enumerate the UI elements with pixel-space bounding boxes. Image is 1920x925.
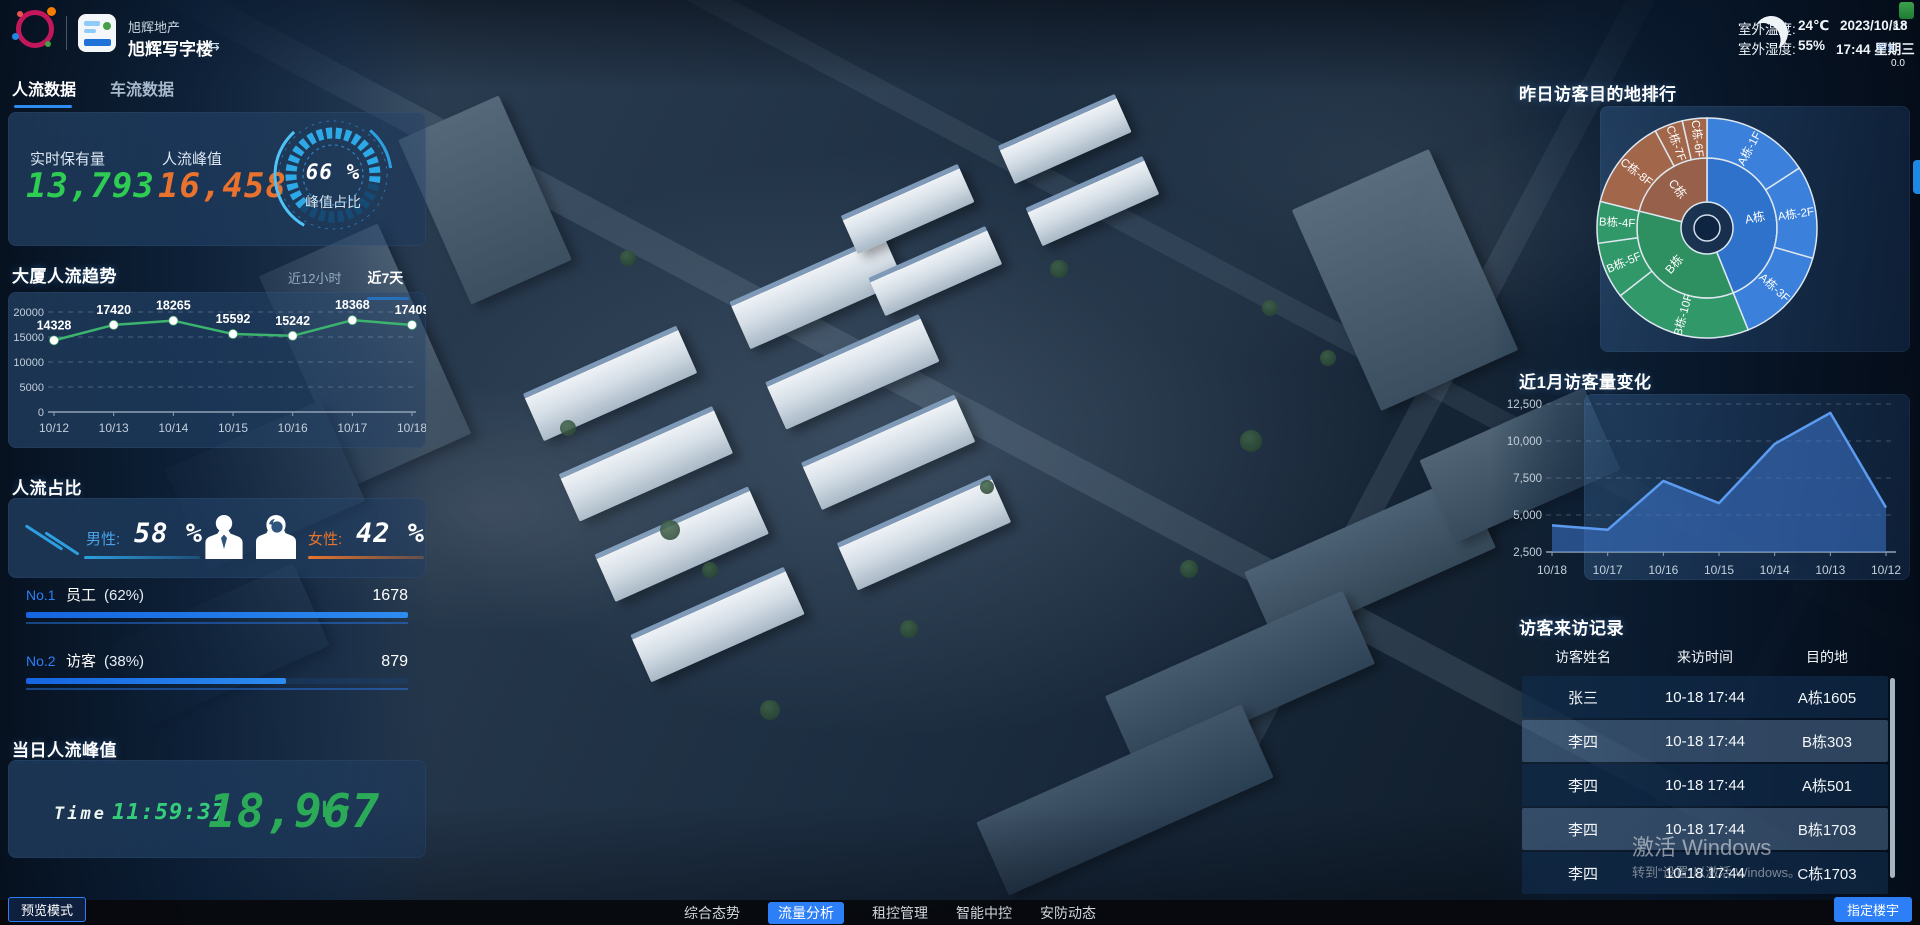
- table-cell: 李四: [1522, 775, 1644, 796]
- net-speed-down: 0.0: [1891, 58, 1905, 69]
- rank-badge: No.2: [26, 653, 66, 669]
- assign-building-button[interactable]: 指定楼宇: [1834, 897, 1912, 922]
- male-underline: [84, 556, 200, 559]
- monthly-visits-area-chart: 2,5005,0007,50010,00012,50010/1810/1710/…: [1498, 388, 1908, 592]
- main-nav: 综合态势流量分析租控管理智能中控安防动态: [684, 902, 1096, 923]
- building-app-icon: [78, 14, 116, 52]
- building-name: 旭辉写字楼: [128, 35, 213, 60]
- scene-building: [1292, 149, 1519, 411]
- svg-text:7,500: 7,500: [1513, 473, 1542, 485]
- nav-item-link[interactable]: 租控管理: [872, 903, 928, 923]
- rank-bar-underline: [26, 622, 408, 624]
- outdoor-temp-label: 室外温度:: [1738, 18, 1796, 38]
- trend-title: 大厦人流趋势: [12, 262, 117, 287]
- rank-bars: No.1员工(62%)1678No.2访客(38%)879: [26, 584, 408, 716]
- scene-building: [1025, 156, 1159, 246]
- svg-text:18265: 18265: [156, 299, 191, 313]
- rank-bar-row: No.2访客(38%)879: [26, 650, 408, 690]
- tab-vehicle-flow[interactable]: 车流数据: [110, 76, 174, 108]
- male-label: 男性:: [86, 528, 120, 549]
- scene-building: [841, 164, 975, 254]
- rank-label: 员工: [66, 584, 96, 605]
- windows-watermark-line2: 转到“设置”以激活 Windows。: [1632, 862, 1801, 881]
- table-cell: A栋1605: [1766, 687, 1888, 708]
- scene-tree: [560, 420, 576, 436]
- outdoor-hum-value: 55%: [1798, 38, 1825, 53]
- rank-percent: (38%): [104, 653, 144, 670]
- scene-building: [523, 325, 698, 441]
- table-cell: B栋303: [1766, 731, 1888, 752]
- trend-range-tabs: 近12小时 近7天: [288, 268, 403, 294]
- svg-text:2,500: 2,500: [1513, 547, 1542, 559]
- svg-text:0: 0: [38, 407, 44, 419]
- scene-tree: [1050, 260, 1068, 278]
- svg-text:10/12: 10/12: [39, 421, 69, 435]
- scene-building: [801, 394, 976, 510]
- net-speed-unit: K/s: [1878, 42, 1892, 53]
- svg-text:17409: 17409: [395, 303, 426, 317]
- rank-bar-underline: [26, 688, 408, 690]
- svg-text:10/13: 10/13: [99, 421, 129, 435]
- scene-tree: [702, 562, 718, 578]
- svg-text:18368: 18368: [335, 298, 370, 312]
- rank-bar-header: No.1员工(62%)1678: [26, 584, 408, 606]
- scene-tree: [660, 520, 680, 540]
- today-peak-title: 当日人流峰值: [12, 736, 117, 761]
- svg-text:15242: 15242: [275, 314, 310, 328]
- current-time: 17:44 星期三: [1836, 38, 1915, 58]
- time-label: Time: [54, 804, 107, 824]
- header-divider: [66, 16, 67, 50]
- left-panel: 旭辉地产 旭辉写字楼 ⇆ 人流数据 车流数据 实时保有量 13,793 人流峰值…: [0, 0, 432, 925]
- table-cell: 李四: [1522, 731, 1644, 752]
- svg-text:10/12: 10/12: [1871, 563, 1901, 577]
- male-value: 58 %: [134, 518, 203, 549]
- scene-building: [559, 406, 734, 522]
- scene-tree: [760, 700, 780, 720]
- male-icon: [204, 514, 244, 560]
- peak-ratio-gauge: 66 % 峰值占比: [268, 110, 398, 240]
- data-tabs: 人流数据 车流数据: [12, 76, 174, 108]
- range-tab-7d[interactable]: 近7天: [367, 268, 403, 294]
- scene-building: [1244, 475, 1496, 646]
- male-deco-line: [25, 524, 64, 550]
- logo-dot: [45, 41, 51, 47]
- svg-text:10/15: 10/15: [1704, 563, 1734, 577]
- ratio-title: 人流占比: [12, 474, 82, 499]
- rank-bar-track: [26, 612, 408, 618]
- rank-bar-fill: [26, 612, 408, 618]
- scene-tree: [1240, 430, 1262, 452]
- table-cell: A栋501: [1766, 775, 1888, 796]
- logo-dot: [47, 7, 56, 16]
- table-header-cell: 来访时间: [1644, 647, 1766, 667]
- svg-text:10000: 10000: [13, 357, 44, 369]
- table-cell: 10-18 17:44: [1644, 689, 1766, 706]
- svg-text:17420: 17420: [96, 303, 131, 317]
- destination-sunburst-chart: A栋B栋C栋A栋-1FA栋-2FA栋-3FB栋-10FB栋-5FB栋-4FC栋-…: [1593, 114, 1821, 342]
- logo-dot: [17, 11, 23, 17]
- svg-text:10/17: 10/17: [337, 421, 367, 435]
- table-cell: 李四: [1522, 819, 1644, 840]
- table-cell: 10-18 17:44: [1644, 777, 1766, 794]
- tray-app-icon: [1899, 2, 1914, 19]
- rank-bar-row: No.1员工(62%)1678: [26, 584, 408, 624]
- female-label: 女性:: [308, 528, 342, 549]
- gender-ratio-card: 男性: 58 % 女性: 42 %: [8, 498, 426, 578]
- scene-building: [729, 234, 904, 350]
- svg-text:10,000: 10,000: [1507, 436, 1542, 448]
- svg-text:10/15: 10/15: [218, 421, 248, 435]
- table-cell: 10-18 17:44: [1644, 733, 1766, 750]
- right-edge-scroll-pill[interactable]: [1913, 160, 1920, 194]
- gauge-value: 66 %: [268, 160, 398, 184]
- svg-text:10/16: 10/16: [278, 421, 308, 435]
- nav-item-link[interactable]: 安防动态: [1040, 903, 1096, 923]
- nav-item-active[interactable]: 流量分析: [768, 902, 844, 924]
- preview-mode-button[interactable]: 预览模式: [8, 897, 86, 922]
- rank-value: 879: [381, 653, 408, 671]
- outdoor-temp-value: 24℃: [1798, 18, 1829, 34]
- scene-tree: [1262, 300, 1278, 316]
- svg-text:15592: 15592: [216, 312, 251, 326]
- scene-tree: [1320, 350, 1336, 366]
- rank-badge: No.1: [26, 587, 66, 603]
- scene-building: [594, 486, 769, 602]
- table-header-cell: 访客姓名: [1522, 647, 1644, 667]
- right-panel: 昨日访客目的地排行 A栋B栋C栋A栋-1FA栋-2FA栋-3FB栋-10FB栋-…: [1490, 0, 1920, 925]
- female-underline: [308, 556, 424, 559]
- nav-item-link[interactable]: 综合态势: [684, 903, 740, 923]
- rank-percent: (62%): [104, 587, 144, 604]
- trend-chart-card: 0500010000150002000010/1210/1310/1410/15…: [8, 292, 426, 448]
- windows-watermark-line1: 激活 Windows: [1632, 830, 1771, 862]
- icon-bar: [84, 29, 96, 33]
- svg-text:10/18: 10/18: [1537, 563, 1567, 577]
- records-title: 访客来访记录: [1519, 614, 1624, 639]
- svg-text:20000: 20000: [13, 307, 44, 319]
- icon-dot: [103, 22, 111, 30]
- icon-bar: [84, 39, 111, 46]
- gauge-caption: 峰值占比: [268, 192, 398, 212]
- people-flow-line-chart: 0500010000150002000010/1210/1310/1410/15…: [8, 292, 426, 448]
- company-name: 旭辉地产: [128, 17, 180, 36]
- table-row[interactable]: 张三10-18 17:44A栋1605: [1522, 676, 1888, 718]
- tab-people-flow[interactable]: 人流数据: [12, 76, 76, 108]
- svg-text:10/14: 10/14: [1760, 563, 1790, 577]
- bottom-nav-bar: 综合态势流量分析租控管理智能中控安防动态: [0, 900, 1920, 925]
- scene-building-cluster: [841, 94, 1160, 317]
- table-cell: B栋1703: [1766, 819, 1888, 840]
- scene-building: [998, 94, 1132, 184]
- scene-tree: [900, 620, 918, 638]
- rank-value: 1678: [372, 587, 408, 605]
- scene-building: [630, 567, 805, 683]
- scene-tree: [980, 480, 994, 494]
- nav-item-link[interactable]: 智能中控: [956, 903, 1012, 923]
- table-cell: 李四: [1522, 863, 1644, 884]
- scene-building: [765, 314, 940, 430]
- scene-building: [976, 704, 1273, 895]
- svg-text:10/17: 10/17: [1593, 563, 1623, 577]
- outdoor-hum-label: 室外湿度:: [1738, 38, 1796, 58]
- rank-label: 访客: [66, 650, 96, 671]
- range-tab-12h[interactable]: 近12小时: [288, 268, 341, 294]
- retain-value: 13,793: [26, 166, 155, 206]
- svg-text:5000: 5000: [20, 382, 44, 394]
- svg-text:10/13: 10/13: [1815, 563, 1845, 577]
- switch-building-icon[interactable]: ⇆: [208, 37, 220, 54]
- svg-text:10/14: 10/14: [158, 421, 188, 435]
- table-header-row: 访客姓名来访时间目的地: [1522, 640, 1888, 674]
- table-row[interactable]: 李四10-18 17:44A栋501: [1522, 764, 1888, 806]
- svg-text:14328: 14328: [37, 318, 72, 332]
- svg-text:15000: 15000: [13, 332, 44, 344]
- table-cell: 张三: [1522, 687, 1644, 708]
- female-icon: [256, 514, 296, 560]
- female-value: 42 %: [356, 518, 425, 549]
- rank-bar-header: No.2访客(38%)879: [26, 650, 408, 672]
- scene-building: [868, 226, 1002, 316]
- scene-building-cluster: [523, 234, 1011, 683]
- scene-building: [1105, 591, 1375, 770]
- table-header-cell: 目的地: [1766, 647, 1888, 667]
- logo-dot: [12, 33, 19, 40]
- brand-logo-icon: [16, 10, 54, 48]
- scene-building: [837, 475, 1012, 591]
- table-row[interactable]: 李四10-18 17:44B栋303: [1522, 720, 1888, 762]
- svg-text:10/16: 10/16: [1648, 563, 1678, 577]
- rank-bar-track: [26, 678, 408, 684]
- scene-tree: [1180, 560, 1198, 578]
- table-scrollbar[interactable]: [1890, 678, 1895, 878]
- svg-text:10/18: 10/18: [397, 421, 426, 435]
- svg-text:5,000: 5,000: [1513, 510, 1542, 522]
- dashboard-root: 旭辉地产 旭辉写字楼 ⇆ 人流数据 车流数据 实时保有量 13,793 人流峰值…: [0, 0, 1920, 925]
- today-peak-suffix: ⊢·: [322, 794, 355, 824]
- destinations-title: 昨日访客目的地排行: [1519, 80, 1677, 105]
- net-speed-up: 8.0: [1893, 22, 1907, 33]
- icon-bar: [84, 21, 100, 26]
- scene-tree: [620, 250, 636, 266]
- rank-bar-fill: [26, 678, 286, 684]
- svg-text:12,500: 12,500: [1507, 399, 1542, 411]
